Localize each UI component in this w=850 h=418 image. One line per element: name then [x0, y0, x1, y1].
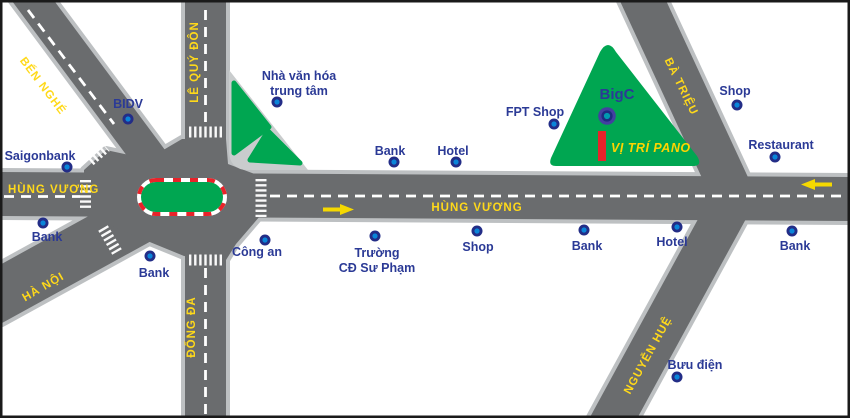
poi-dot-saigonbank	[62, 162, 73, 173]
poi-label-shop-northeast: Shop	[719, 84, 751, 98]
poi-dot-bigc	[598, 107, 616, 125]
billboard-marker	[598, 131, 606, 161]
poi-label-buu-dien: Bưu điện	[668, 358, 723, 372]
poi-dot-hotel-center-north	[451, 157, 462, 168]
poi-dot-shop-center-south	[472, 226, 483, 237]
poi-label-hotel-center-north: Hotel	[437, 144, 468, 158]
poi-label-nha-van-hoa-line2: trung tâm	[270, 84, 328, 98]
poi-label-truong-line1: Trường	[354, 246, 399, 260]
poi-dot-buu-dien	[672, 372, 683, 383]
poi-dot-restaurant	[770, 152, 781, 163]
poi-dot-bank-center-north	[389, 157, 400, 168]
road-label-le-quy-don: LÊ QUÝ ĐÔN	[188, 21, 201, 103]
billboard-location-map: VỊ TRÍ PANO HÙNG VƯƠNG HÙNG VƯƠNG BẾN NG…	[0, 0, 850, 418]
poi-label-bank-dongda: Bank	[139, 266, 170, 280]
poi-label-bank-center-north: Bank	[375, 144, 406, 158]
poi-label-bank-west: Bank	[32, 230, 63, 244]
road-label-hung-vuong-center: HÙNG VƯƠNG	[431, 201, 522, 214]
poi-label-bigc: BigC	[600, 86, 635, 103]
poi-dot-fpt-shop	[549, 119, 560, 130]
poi-dot-bidv	[123, 114, 134, 125]
poi-label-bank-center-east: Bank	[572, 239, 603, 253]
poi-label-truong-line2: CĐ Sư Phạm	[339, 261, 415, 275]
poi-dot-bank-dongda	[145, 251, 156, 262]
road-label-dong-da: ĐỐNG ĐA	[184, 296, 198, 357]
billboard-label: VỊ TRÍ PANO	[611, 140, 691, 155]
poi-dot-shop-northeast	[732, 100, 743, 111]
poi-dot-bank-center-east	[579, 225, 590, 236]
road-label-hung-vuong-west: HÙNG VƯƠNG	[8, 183, 99, 196]
poi-label-bidv: BIDV	[113, 97, 144, 111]
poi-label-bank-east: Bank	[780, 239, 811, 253]
poi-label-cong-an: Công an	[232, 245, 282, 259]
poi-label-restaurant: Restaurant	[748, 138, 814, 152]
poi-label-nha-van-hoa: Nhà văn hóatrung tâm	[262, 69, 337, 98]
poi-label-shop-center-south: Shop	[462, 240, 494, 254]
poi-dot-cong-an	[260, 235, 271, 246]
poi-dot-hotel-east	[672, 222, 683, 233]
poi-label-nha-van-hoa-line1: Nhà văn hóa	[262, 69, 337, 83]
poi-dot-nha-van-hoa	[272, 97, 283, 108]
poi-label-fpt-shop: FPT Shop	[506, 105, 565, 119]
poi-dot-bank-east	[787, 226, 798, 237]
poi-label-hotel-east: Hotel	[656, 235, 687, 249]
poi-dot-truong-cd-su-pham	[370, 231, 381, 242]
roundabout	[139, 180, 225, 214]
poi-dot-bank-west	[38, 218, 49, 229]
poi-label-saigonbank: Saigonbank	[5, 149, 76, 163]
roundabout-lawn	[139, 180, 225, 214]
